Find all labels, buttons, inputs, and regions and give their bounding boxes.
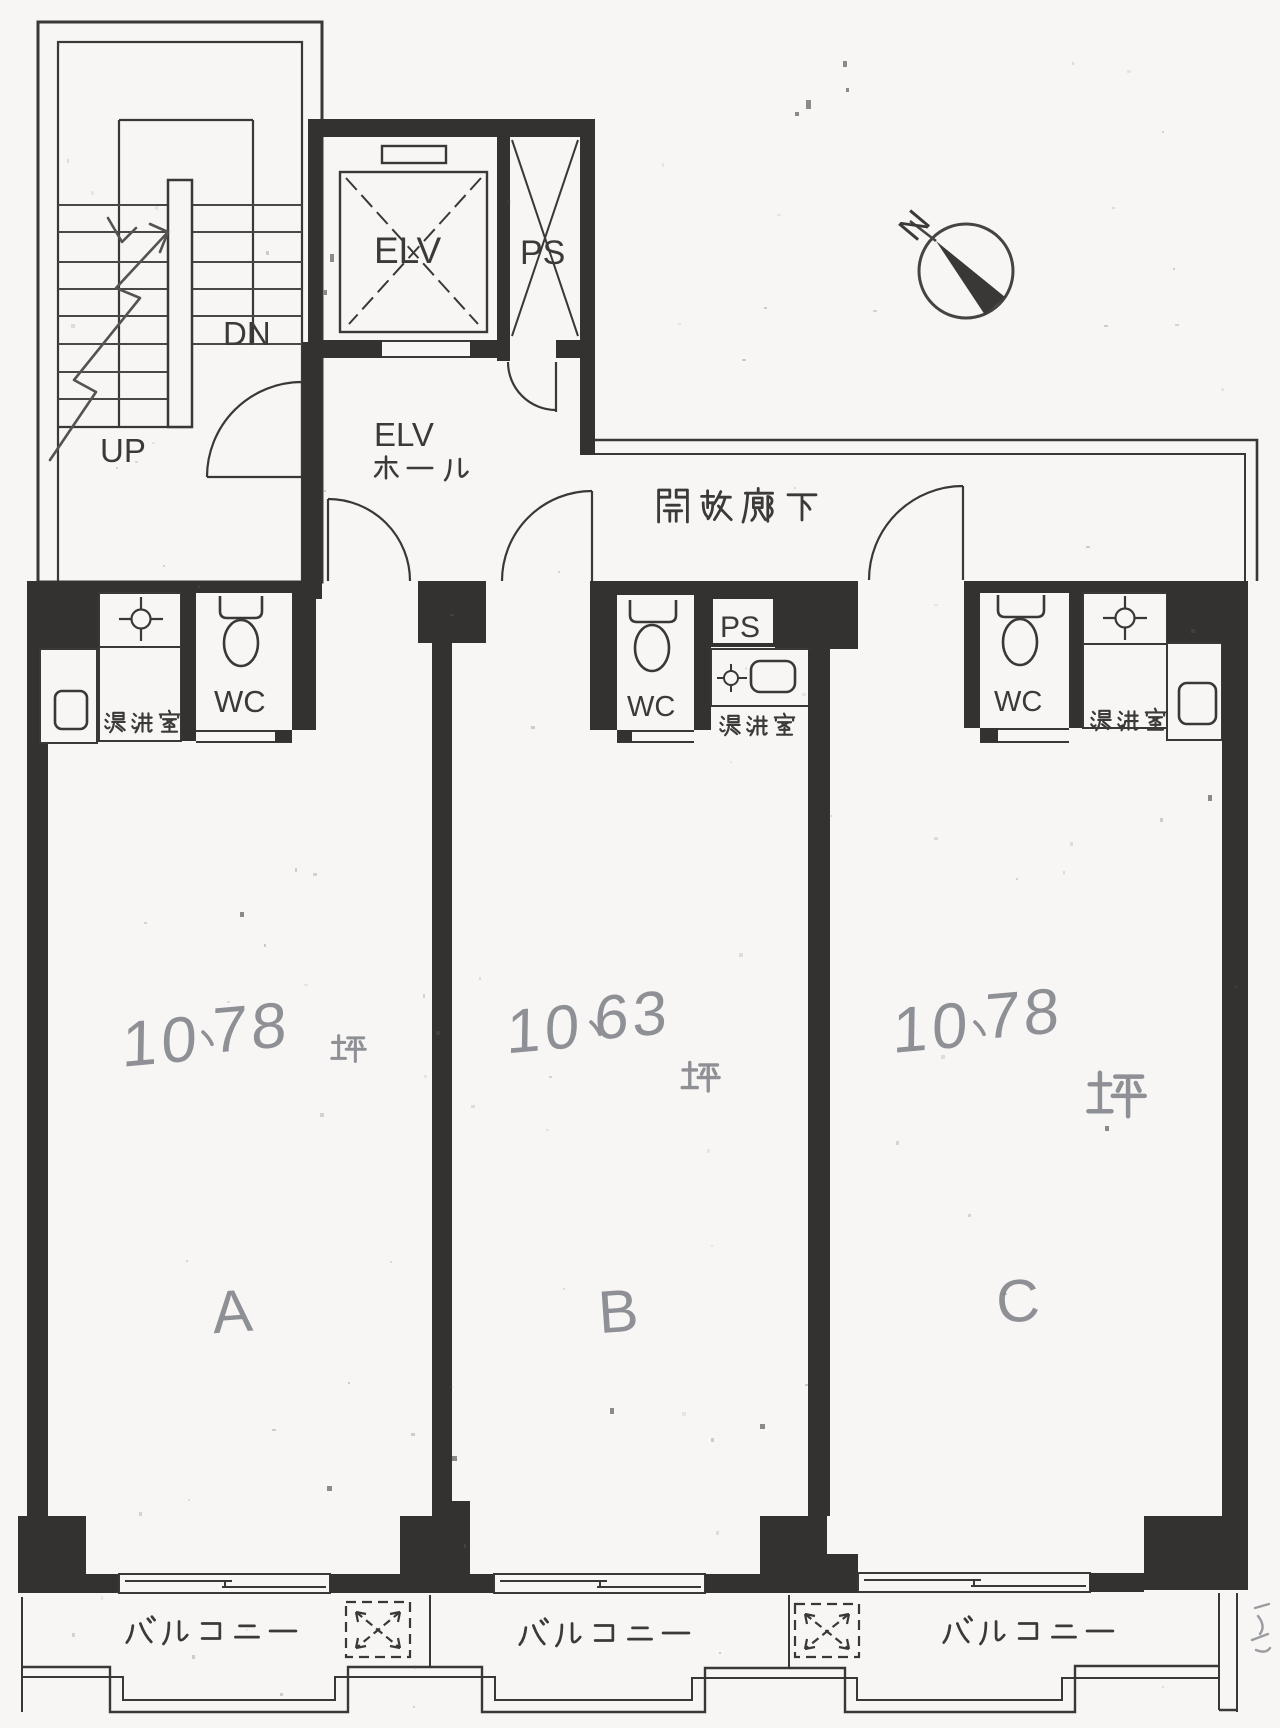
svg-text:63: 63 bbox=[594, 978, 672, 1054]
svg-text:UP: UP bbox=[100, 432, 146, 469]
svg-text:WC: WC bbox=[214, 684, 266, 719]
svg-text:PS: PS bbox=[520, 234, 565, 272]
svg-text:10: 10 bbox=[892, 988, 972, 1067]
svg-text:C: C bbox=[994, 1266, 1042, 1336]
svg-text:PS: PS bbox=[720, 611, 760, 644]
svg-text:WC: WC bbox=[994, 686, 1042, 718]
svg-text:ELV: ELV bbox=[374, 416, 434, 453]
svg-text:10: 10 bbox=[121, 1002, 201, 1081]
svg-text:ELV: ELV bbox=[374, 230, 442, 271]
svg-text:78: 78 bbox=[984, 974, 1064, 1053]
svg-text:WC: WC bbox=[627, 691, 675, 723]
svg-text:DN: DN bbox=[223, 315, 271, 352]
svg-text:78: 78 bbox=[211, 988, 291, 1067]
svg-text:10: 10 bbox=[506, 992, 584, 1068]
svg-text:A: A bbox=[210, 1277, 255, 1347]
svg-text:B: B bbox=[596, 1276, 641, 1346]
